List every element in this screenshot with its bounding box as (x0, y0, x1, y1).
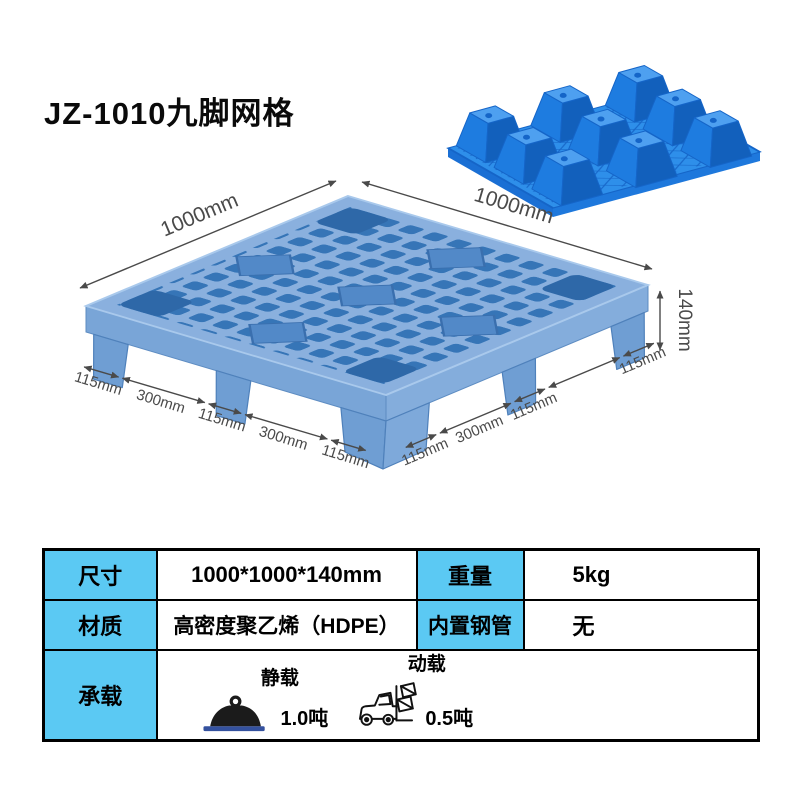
pipe-value: 无 (524, 600, 759, 650)
table-row-size: 尺寸 1000*1000*140mm 重量 5kg (44, 550, 759, 601)
static-load-label: 静载 (232, 669, 329, 689)
page: JZ-1010九脚网格 (0, 0, 800, 800)
dim-fl-4: 300mm (257, 423, 310, 454)
dynamic-load-value: 0.5吨 (425, 702, 473, 733)
dynamic-load-label: 动载 (380, 655, 473, 675)
static-load-weight-icon (198, 689, 274, 733)
material-value: 高密度聚乙烯（HDPE） (157, 600, 417, 650)
table-row-material: 材质 高密度聚乙烯（HDPE） 内置钢管 无 (44, 600, 759, 650)
load-label: 承载 (44, 650, 157, 741)
weight-value: 5kg (524, 550, 759, 601)
table-row-load: 承载 静载 1.0吨 (44, 650, 759, 741)
static-load-value: 1.0吨 (281, 702, 329, 733)
dim-height: 140mm (674, 288, 695, 351)
dynamic-load-forklift-icon (354, 675, 418, 733)
load-content: 静载 1.0吨 动载 (157, 650, 759, 741)
weight-label: 重量 (417, 550, 524, 601)
static-load-group: 静载 1.0吨 (198, 669, 329, 733)
dim-fl-2: 300mm (134, 386, 187, 417)
pallet-diagram: 1000mm 1000mm 140mm 115mm 300mm 115mm 30… (0, 0, 800, 545)
spec-table: 尺寸 1000*1000*140mm 重量 5kg 材质 高密度聚乙烯（HDPE… (42, 548, 760, 742)
size-label: 尺寸 (44, 550, 157, 601)
material-label: 材质 (44, 600, 157, 650)
pipe-label: 内置钢管 (417, 600, 524, 650)
dim-length-left: 1000mm (157, 189, 241, 242)
size-value: 1000*1000*140mm (157, 550, 417, 601)
dynamic-load-group: 动载 (354, 655, 473, 733)
